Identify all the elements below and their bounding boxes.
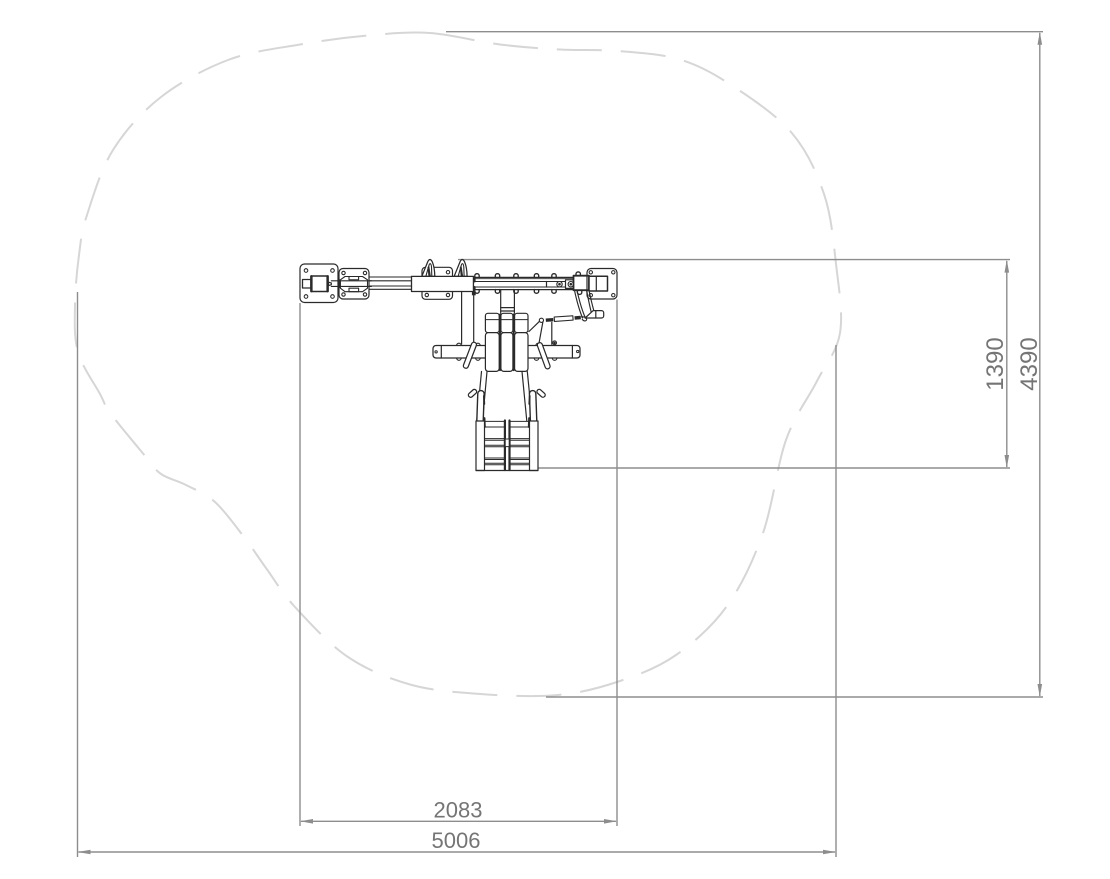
svg-text:2083: 2083 — [434, 797, 483, 822]
svg-text:1390: 1390 — [982, 337, 1009, 390]
svg-text:4390: 4390 — [1016, 337, 1043, 390]
svg-text:5006: 5006 — [432, 828, 481, 853]
